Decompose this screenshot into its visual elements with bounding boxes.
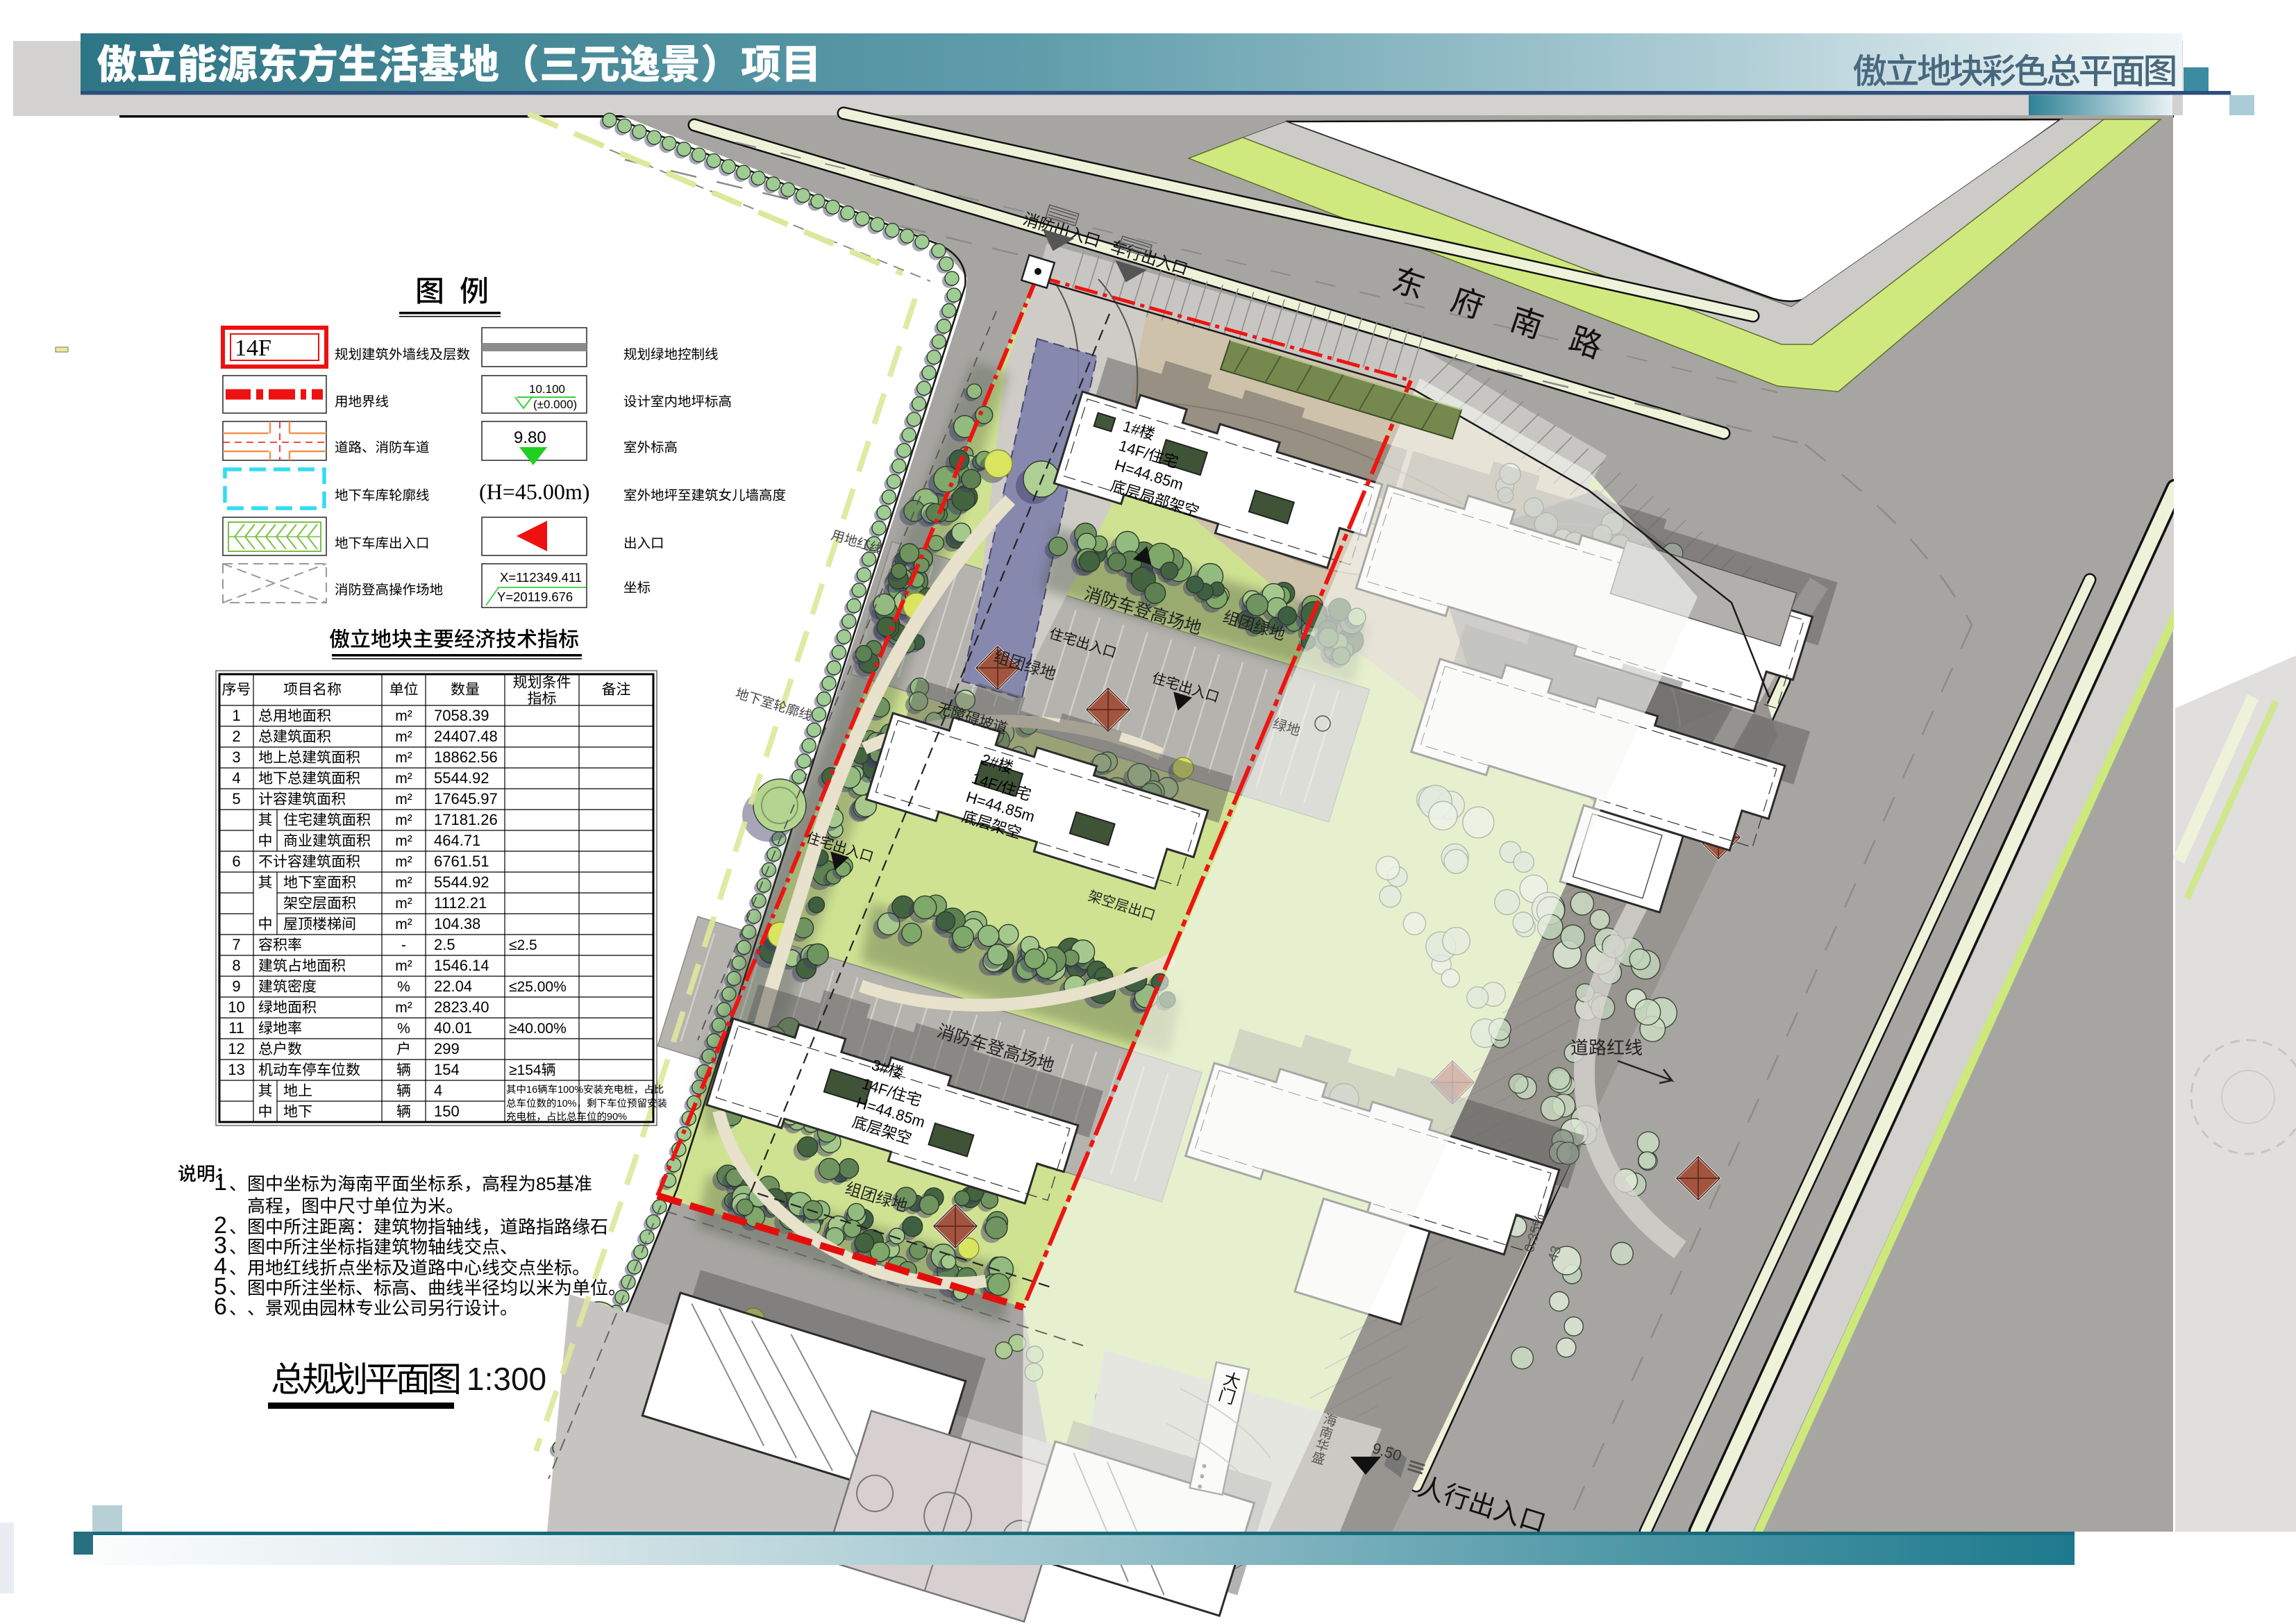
svg-text:2823.40: 2823.40: [434, 998, 489, 1016]
svg-text:1:300: 1:300: [467, 1361, 546, 1397]
svg-text:17181.26: 17181.26: [434, 811, 498, 828]
svg-text:104.38: 104.38: [434, 915, 480, 932]
svg-text:Y=20119.676: Y=20119.676: [497, 589, 573, 604]
svg-text:464.71: 464.71: [434, 832, 480, 849]
svg-text:m²: m²: [395, 792, 412, 807]
svg-text:1546.14: 1546.14: [434, 957, 489, 974]
svg-text:-: -: [401, 937, 406, 953]
svg-text:16: 16: [526, 1085, 537, 1096]
svg-text:9: 9: [232, 978, 240, 995]
svg-text:1: 1: [214, 1169, 227, 1196]
svg-text:10.100: 10.100: [529, 383, 565, 396]
svg-text:≤2.5: ≤2.5: [509, 937, 537, 953]
svg-text:m²: m²: [395, 729, 412, 745]
svg-text:17645.97: 17645.97: [434, 790, 498, 807]
svg-text:5544.92: 5544.92: [434, 873, 489, 891]
svg-text:150: 150: [434, 1103, 460, 1120]
svg-text:m²: m²: [395, 812, 412, 828]
svg-text:85: 85: [536, 1173, 556, 1194]
svg-text:8: 8: [232, 957, 240, 974]
svg-text:9.80: 9.80: [514, 428, 546, 447]
svg-text:4: 4: [434, 1082, 442, 1099]
svg-text:m²: m²: [395, 896, 412, 912]
svg-text:2.5: 2.5: [434, 936, 455, 953]
svg-text:154: 154: [434, 1061, 460, 1078]
svg-text:m²: m²: [395, 958, 412, 974]
svg-text:18862.56: 18862.56: [434, 748, 498, 766]
svg-text:12: 12: [228, 1040, 244, 1057]
svg-text:5544.92: 5544.92: [434, 769, 489, 787]
svg-text:13: 13: [228, 1061, 244, 1078]
svg-text:90%: 90%: [607, 1112, 627, 1123]
svg-text:22.04: 22.04: [434, 978, 472, 995]
svg-text:299: 299: [434, 1040, 460, 1057]
svg-text:5: 5: [232, 790, 240, 807]
svg-text:m²: m²: [395, 708, 412, 724]
svg-text:%: %: [397, 1021, 410, 1037]
svg-text:10: 10: [228, 998, 244, 1016]
svg-text:m²: m²: [395, 875, 412, 891]
svg-text:24407.48: 24407.48: [434, 728, 498, 745]
svg-text:14F: 14F: [235, 335, 271, 361]
svg-text:m²: m²: [395, 1000, 412, 1016]
svg-text:4: 4: [232, 769, 240, 787]
svg-text:m²: m²: [395, 771, 412, 787]
svg-text:m²: m²: [395, 854, 412, 870]
svg-text:(H=45.00m): (H=45.00m): [479, 479, 589, 504]
svg-text:m²: m²: [395, 750, 412, 766]
svg-text:10%: 10%: [557, 1098, 577, 1110]
svg-text:100%: 100%: [558, 1085, 583, 1096]
svg-text:m²: m²: [395, 916, 412, 932]
svg-text:3: 3: [232, 748, 240, 766]
svg-text:6: 6: [232, 853, 240, 870]
svg-text:≥40.00%: ≥40.00%: [509, 1021, 567, 1037]
svg-text:2: 2: [232, 728, 240, 745]
svg-text:X=112349.411: X=112349.411: [500, 570, 582, 585]
svg-text:m²: m²: [395, 833, 412, 849]
svg-text:7: 7: [232, 936, 240, 953]
svg-text:%: %: [397, 979, 410, 995]
svg-text:(±0.000): (±0.000): [533, 398, 577, 411]
svg-text:1: 1: [232, 707, 240, 724]
svg-text:6: 6: [214, 1294, 227, 1320]
svg-text:40.01: 40.01: [434, 1019, 472, 1037]
svg-text:≤25.00%: ≤25.00%: [509, 979, 567, 995]
svg-text:6761.51: 6761.51: [434, 853, 489, 870]
svg-text:≥154: ≥154: [509, 1062, 542, 1078]
svg-text:1112.21: 1112.21: [434, 894, 487, 912]
svg-text:7058.39: 7058.39: [434, 707, 489, 724]
svg-text:11: 11: [228, 1019, 244, 1037]
